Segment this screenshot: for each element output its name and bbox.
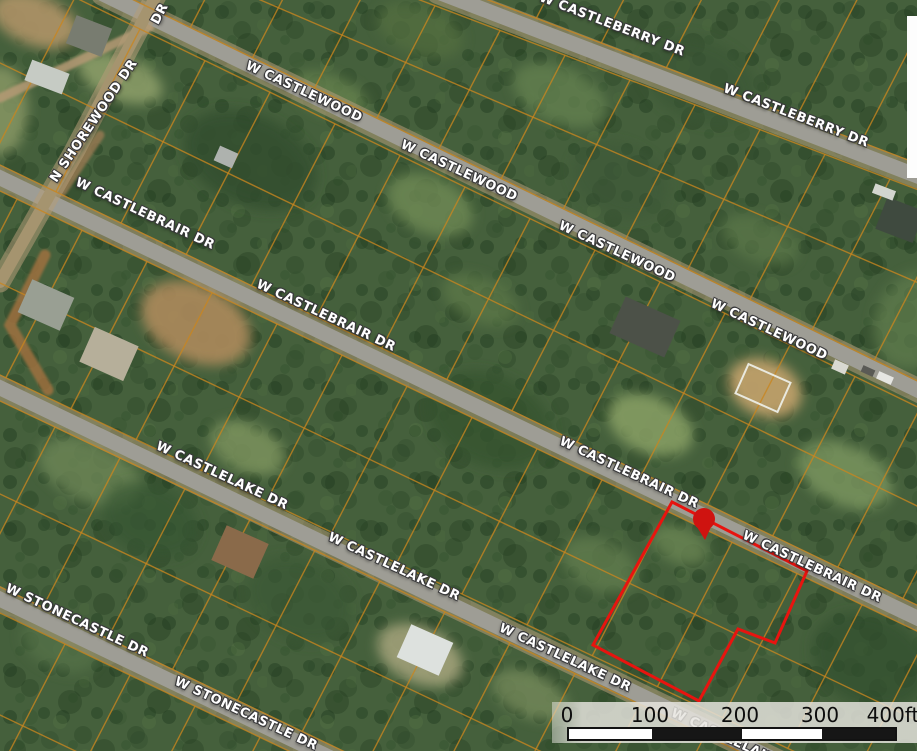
scale-bar-segment [742,729,822,739]
scale-tick-label: 400ft [867,703,917,727]
scale-tick-labels: 0100200300400ft [552,703,917,725]
scale-bar-segment [822,729,895,739]
scale-tick-label: 0 [561,703,574,727]
scale-bar-track [567,727,897,741]
scale-bar-segment [569,729,652,739]
scale-bar: 0100200300400ft [552,702,917,743]
image-edge-artifact [907,16,917,178]
scale-tick-label: 100 [631,703,669,727]
aerial-map-canvas[interactable]: W CASTLEBERRY DRW CASTLEBERRY DRW CASTLE… [0,0,917,751]
scale-tick-label: 200 [721,703,759,727]
scale-tick-label: 300 [801,703,839,727]
satellite-imagery [0,0,917,751]
location-pin-head [693,508,715,530]
scale-bar-segment [652,729,742,739]
